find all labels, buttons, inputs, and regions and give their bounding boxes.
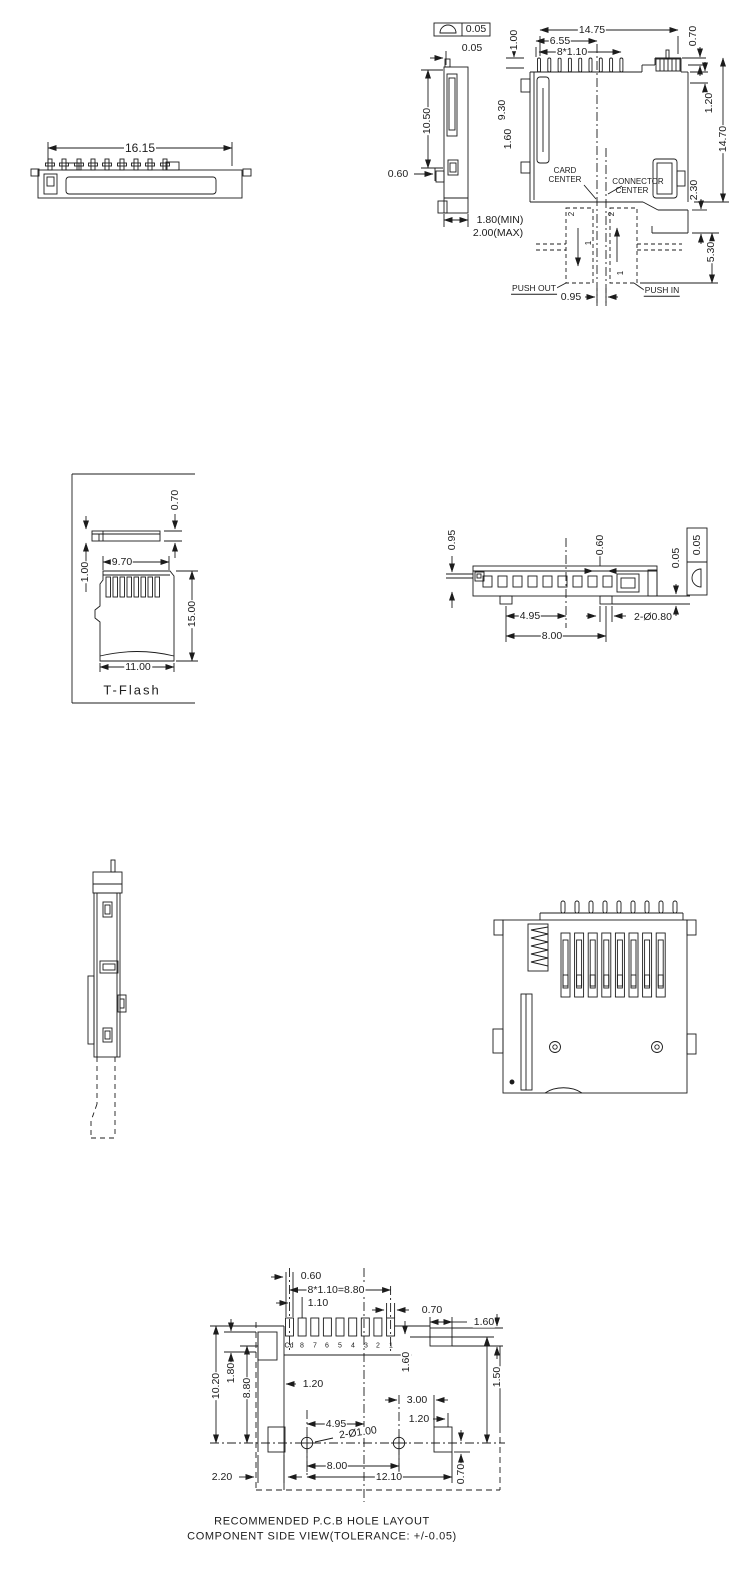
pad-label-5: 5 (338, 1343, 342, 1350)
bottom-view (446, 528, 707, 642)
dim-card-contact-width: 9.70 (111, 557, 133, 568)
drawing-linework (0, 0, 750, 1573)
dim-throat-depth: 2.30 (689, 179, 700, 201)
dim-pin-height: 1.00 (509, 29, 520, 51)
card-center-label2: CENTER (549, 176, 582, 184)
dim-card-thickness-full: 1.00 (80, 561, 91, 583)
dim-body-width: 14.75 (578, 25, 606, 36)
push-in-label: PUSH IN (644, 286, 680, 297)
dim-left-offset: 1.20 (302, 1379, 324, 1390)
dim-right-step: 0.70 (688, 25, 699, 47)
dim-edge-offset: 2.20 (211, 1472, 233, 1483)
dim-foot-span: 8.00 (541, 631, 563, 642)
dim-holes-08: 2-Ø0.80 (633, 612, 673, 623)
dim-pin-width: 0.60 (595, 534, 606, 556)
pad-label-3: 3 (364, 1343, 368, 1350)
dim-center-offset: 0.95 (560, 292, 582, 303)
dim-cd-offset: 0.60 (300, 1271, 322, 1282)
dim-card-width: 11.00 (124, 662, 152, 673)
dim-total-height: 14.70 (718, 125, 729, 153)
dim-tab-width: 0.60 (387, 169, 409, 180)
dim-total-span: 12.10 (375, 1472, 403, 1483)
dim-pin-pitch: 8*1.10 (556, 47, 588, 58)
pad-label-4: 4 (351, 1343, 355, 1350)
dim-card-gap: 0.95 (447, 529, 458, 551)
connector-drawing-sheet: 16.15 0.05 0.05 10.50 0.60 1.80(MIN) 2.0… (0, 0, 750, 1573)
push-out-label: PUSH OUT (511, 284, 557, 295)
dim-right-lip: 1.20 (704, 92, 715, 114)
dim-card-length: 15.00 (187, 600, 198, 628)
dim-front-width: 16.15 (124, 142, 156, 154)
connector-center-label2: CENTER (616, 187, 649, 195)
dim-foot-to-center: 4.95 (519, 611, 541, 622)
dim-thickness-max: 2.00(MAX) (472, 228, 524, 239)
side-view-main (506, 30, 729, 306)
dim-pad-drop: 1.60 (401, 1351, 412, 1373)
dim-card-thickness: 0.70 (170, 489, 181, 511)
connector-center-label: CONNECTOR (612, 178, 663, 186)
caption-line-1: RECOMMENDED P.C.B HOLE LAYOUT (213, 1517, 431, 1528)
pad-label-1: 1 (389, 1343, 393, 1350)
card-center-label: CARD (554, 167, 577, 175)
pad-label-7: 7 (313, 1343, 317, 1350)
dim-body-height: 9.30 (497, 99, 508, 121)
card-pos-2: 2 (568, 212, 576, 216)
side-view-2 (88, 860, 126, 1138)
pad-label-2: 2 (376, 1343, 380, 1350)
dim-travel: 5.30 (706, 241, 717, 263)
dim-hole-span: 8.00 (326, 1461, 348, 1472)
dim-coplanarity: 0.05 (671, 547, 682, 569)
dim-thickness-min: 1.80(MIN) (476, 215, 525, 226)
dim-seam-offset: 0.05 (461, 43, 483, 54)
dim-right-gap: 3.00 (406, 1395, 428, 1406)
tolerance-value: 0.05 (465, 24, 487, 35)
dim-tab-gap: 1.20 (408, 1414, 430, 1425)
dim-pin-to-center: 6.55 (549, 36, 571, 47)
tolerance-value-2: 0.05 (692, 534, 703, 556)
dim-pitch-total: 8*1.10=8.80 (307, 1285, 366, 1296)
card-pos-1b: 1 (617, 271, 625, 275)
dim-left-step: 1.60 (503, 128, 514, 150)
top-view (493, 901, 696, 1093)
caption-line-2: COMPONENT SIDE VIEW(TOLERANCE: +/-0.05) (186, 1532, 458, 1543)
pad-label-6: 6 (325, 1343, 329, 1350)
dim-left-height: 10.20 (211, 1372, 222, 1400)
dim-left-span: 8.80 (242, 1377, 253, 1399)
dim-tab-drop: 0.70 (456, 1463, 467, 1485)
dim-side-height: 10.50 (422, 107, 433, 135)
card-pos-2b: 2 (608, 212, 616, 216)
dim-tab-width-160: 1.60 (473, 1317, 495, 1328)
dim-pad-width: 0.70 (421, 1305, 443, 1316)
card-pos-1: 1 (585, 241, 593, 245)
dim-tab-height: 1.50 (492, 1366, 503, 1388)
pad-label-8: 8 (300, 1343, 304, 1350)
dim-pad-height: 1.80 (226, 1362, 237, 1384)
dim-pitch: 1.10 (307, 1298, 329, 1309)
card-label: T-Flash (102, 684, 161, 697)
pad-label-cd: Cd (285, 1343, 294, 1350)
